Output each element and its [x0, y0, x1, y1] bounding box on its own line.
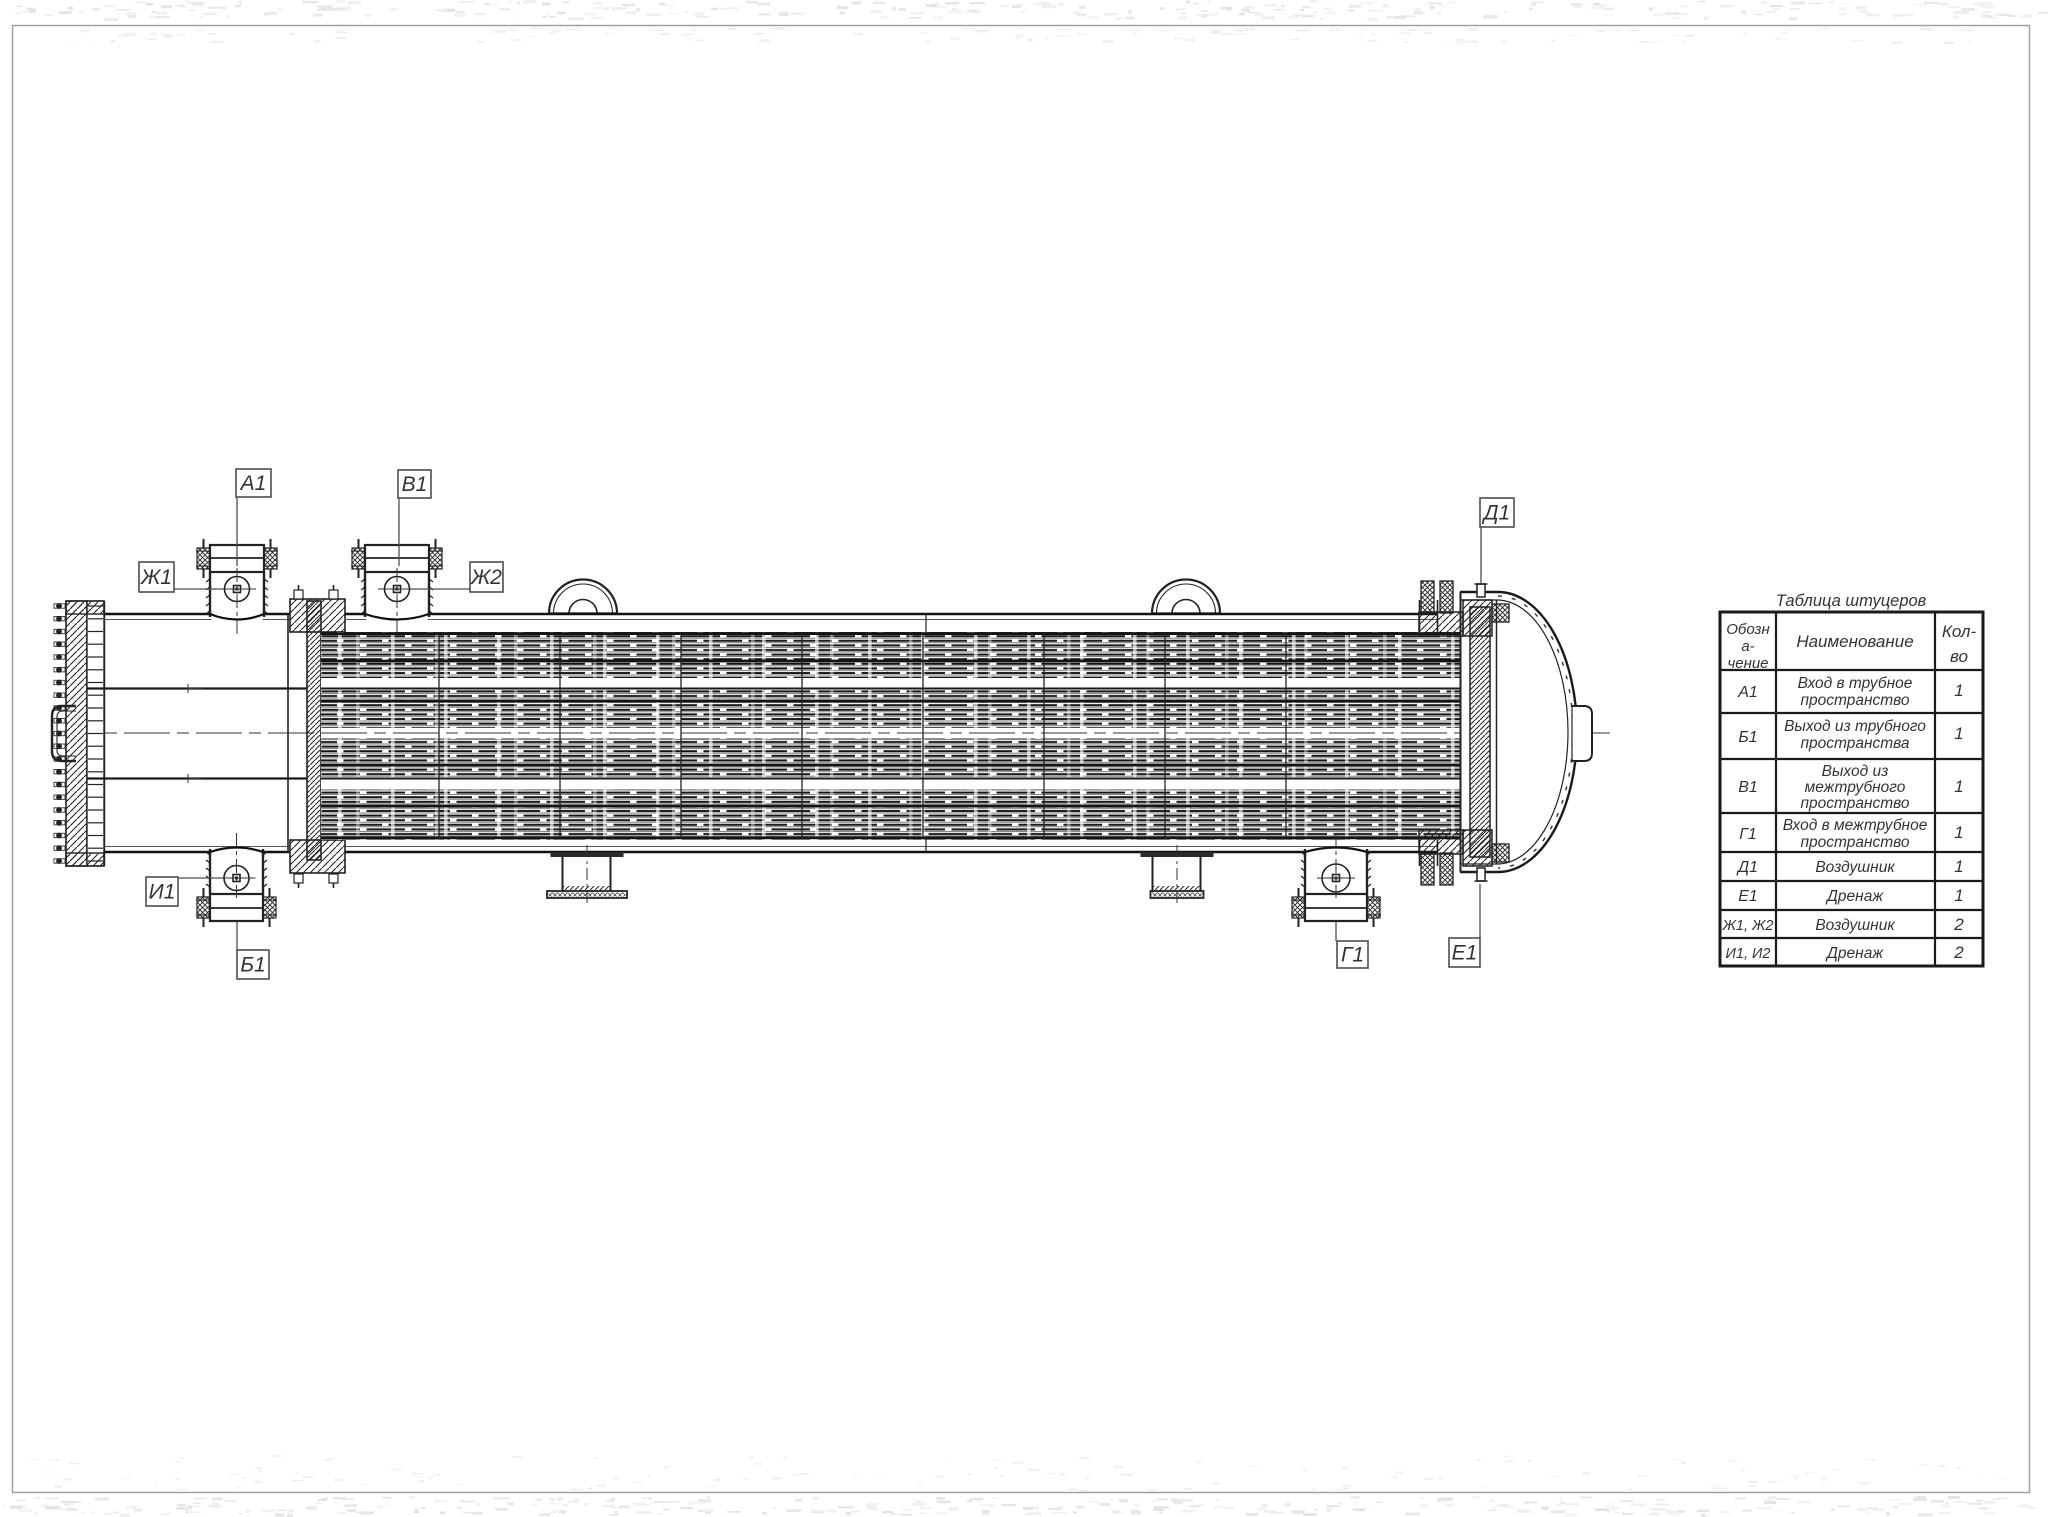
svg-text:И1, И2: И1, И2 [1726, 946, 1771, 962]
svg-text:Б1: Б1 [1738, 729, 1757, 746]
svg-text:2: 2 [1953, 915, 1964, 934]
svg-text:Таблица штуцеров: Таблица штуцеров [1776, 592, 1927, 610]
svg-text:1: 1 [1954, 724, 1963, 743]
svg-text:Воздушник: Воздушник [1815, 859, 1895, 876]
svg-text:А1: А1 [1737, 684, 1758, 701]
svg-text:чение: чение [1727, 655, 1768, 672]
svg-text:1: 1 [1954, 857, 1963, 876]
svg-text:В1: В1 [402, 473, 428, 496]
svg-text:Ж1: Ж1 [140, 566, 172, 589]
svg-text:1: 1 [1954, 823, 1963, 842]
svg-text:Выход из трубного: Выход из трубного [1784, 718, 1926, 735]
svg-text:Ж2: Ж2 [470, 566, 502, 589]
svg-text:во: во [1950, 647, 1968, 666]
svg-text:2: 2 [1953, 943, 1964, 962]
svg-text:Обозн: Обозн [1726, 621, 1770, 638]
svg-text:Е1: Е1 [1452, 942, 1478, 965]
svg-text:Ж1, Ж2: Ж1, Ж2 [1722, 918, 1774, 934]
svg-text:Выход из: Выход из [1822, 763, 1889, 780]
svg-text:Кол-: Кол- [1942, 622, 1977, 641]
svg-text:Дренаж: Дренаж [1825, 945, 1884, 962]
svg-text:Дренаж: Дренаж [1825, 888, 1884, 905]
svg-text:Г1: Г1 [1739, 826, 1757, 843]
svg-text:межтрубного: межтрубного [1805, 779, 1906, 796]
svg-text:Вход в трубное: Вход в трубное [1798, 675, 1913, 692]
svg-text:Д1: Д1 [1482, 502, 1510, 525]
svg-text:В1: В1 [1738, 779, 1758, 796]
svg-text:1: 1 [1954, 886, 1963, 905]
svg-text:А1: А1 [239, 472, 267, 495]
svg-text:Б1: Б1 [240, 954, 265, 977]
svg-text:Д1: Д1 [1736, 859, 1758, 876]
svg-text:пространство: пространство [1800, 795, 1909, 812]
svg-text:1: 1 [1954, 777, 1963, 796]
svg-text:пространство: пространство [1800, 692, 1909, 709]
svg-text:Вход в межтрубное: Вход в межтрубное [1783, 817, 1928, 834]
svg-text:пространства: пространства [1800, 735, 1909, 752]
svg-text:Е1: Е1 [1738, 888, 1758, 905]
svg-text:Г1: Г1 [1341, 944, 1364, 967]
svg-text:1: 1 [1954, 681, 1963, 700]
svg-text:Воздушник: Воздушник [1815, 917, 1895, 934]
svg-text:а-: а- [1741, 638, 1754, 655]
svg-text:Наименование: Наименование [1796, 632, 1913, 651]
svg-text:пространство: пространство [1800, 834, 1909, 851]
svg-text:И1: И1 [149, 881, 176, 904]
